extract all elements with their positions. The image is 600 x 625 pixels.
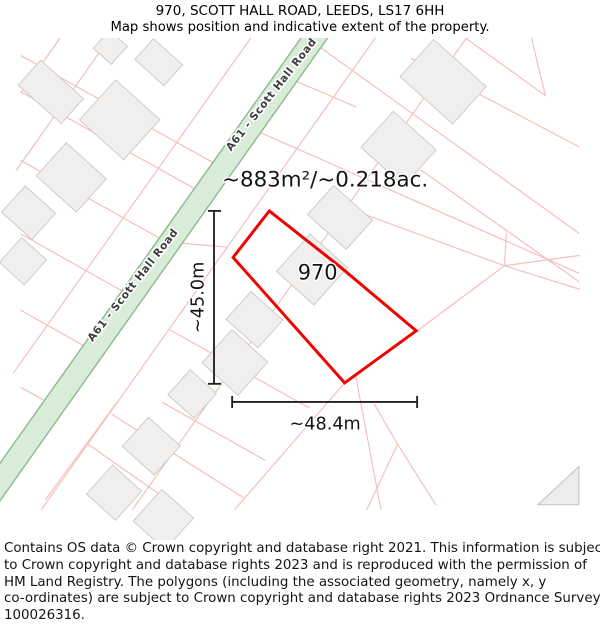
grey-corner-area	[538, 467, 579, 505]
building	[135, 39, 183, 86]
building	[133, 489, 193, 540]
building	[400, 39, 486, 124]
parcel-line	[505, 233, 507, 266]
copyright-footer: Contains OS data © Crown copyright and d…	[0, 541, 596, 625]
road-label: A61 - Scott Hall Road	[223, 38, 319, 153]
page-subtitle: Map shows position and indicative extent…	[0, 20, 600, 35]
vertical-dimension-label: ~45.0m	[188, 262, 208, 333]
building	[168, 370, 217, 419]
footer-line: Contains OS data © Crown copyright and d…	[4, 541, 596, 558]
property-map-page: 970, SCOTT HALL ROAD, LEEDS, LS17 6HH Ma…	[0, 0, 600, 625]
footer-line: 100026316.	[4, 608, 596, 625]
parcel-line	[505, 266, 579, 289]
footer-line: co-ordinates) are subject to Crown copyr…	[4, 591, 596, 608]
footer-line: HM Land Registry. The polygons (includin…	[4, 575, 596, 592]
parcel-line	[374, 404, 435, 504]
building	[87, 465, 142, 520]
page-title: 970, SCOTT HALL ROAD, LEEDS, LS17 6HH	[0, 3, 600, 19]
parcel-line	[297, 82, 356, 107]
building	[36, 143, 106, 212]
building	[93, 38, 127, 64]
header: 970, SCOTT HALL ROAD, LEEDS, LS17 6HH Ma…	[0, 0, 600, 38]
parcel-line	[356, 376, 381, 509]
building	[18, 60, 83, 123]
building	[80, 80, 160, 160]
parcel-line	[417, 266, 504, 331]
horizontal-dimension-label: ~48.4m	[289, 414, 360, 434]
map-svg: A61 - Scott Hall Road A61 - Scott Hall R…	[0, 38, 600, 540]
plot-number-label: 970	[298, 261, 338, 285]
parcel-line	[421, 170, 579, 282]
footer-line: to Crown copyright and database rights 2…	[4, 558, 596, 575]
road-label: A61 - Scott Hall Road	[85, 226, 181, 344]
area-label: ~883m²/~0.218ac.	[222, 168, 428, 193]
parcel-line	[367, 444, 398, 509]
map-canvas: A61 - Scott Hall Road A61 - Scott Hall R…	[0, 38, 600, 540]
parcel-line	[162, 402, 264, 460]
building	[2, 186, 56, 240]
